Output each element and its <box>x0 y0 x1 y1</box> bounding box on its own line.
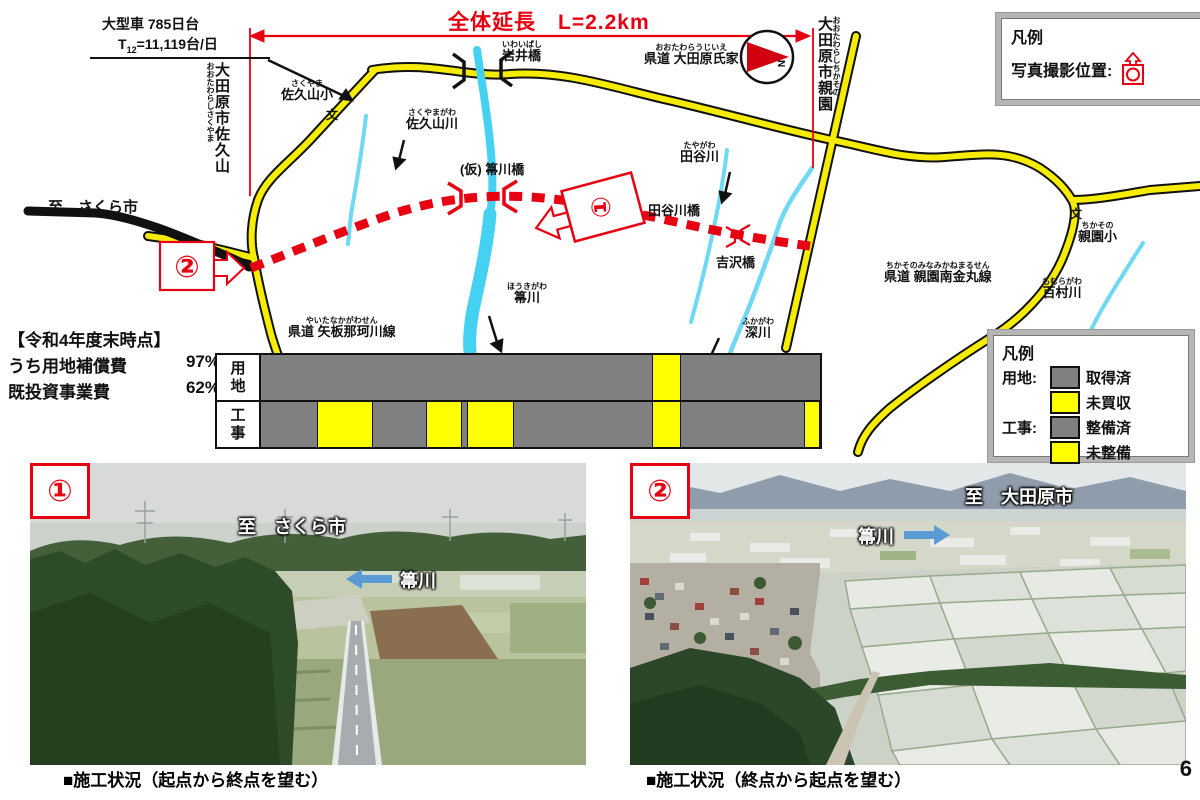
gray-swatch <box>1050 416 1080 439</box>
traffic-note-line1: 大型車 785日台 <box>90 14 270 34</box>
progress-bar-table: 用 地 工 事 <box>215 353 822 449</box>
map-label-chikasono-school: ちかその 親園小 <box>1078 222 1117 243</box>
map-title: 全体延長 L=2.2km <box>448 6 650 36</box>
map-label-route-chikasono: ちかそのみなみかねまるせん 県道 親園南金丸線 <box>884 262 992 283</box>
aerial-photo-1: ① 至 さくら市 箒川 <box>30 463 586 765</box>
map-label-route-yaita: やいたなかがわせん 県道 矢板那珂川線 <box>288 317 396 338</box>
pending-segment <box>652 355 681 400</box>
legend-item-built: 工事: 整備済 <box>1002 416 1180 439</box>
status-block: 【令和4年度末時点】 うち用地補償費97% 既投資事業費62% <box>8 326 220 403</box>
legend1-title: 凡例 <box>1011 24 1197 48</box>
photo-marker-1: ① <box>529 173 645 251</box>
national-road <box>28 211 249 267</box>
map-label-yoshizawa-bridge: 吉沢橋 <box>716 256 755 269</box>
yellow-swatch <box>1050 441 1080 464</box>
compass-n: N <box>775 60 786 67</box>
houkigawa-bridge-icon <box>448 181 517 214</box>
photo1-dest-label: 至 さくら市 <box>238 513 346 539</box>
status-row-invest: 既投資事業費62% <box>8 378 220 403</box>
map-label-route-ujiie: おおたわらうじいえ 県道 大田原氏家 <box>644 44 739 65</box>
school-symbol-icon: 文 <box>1070 208 1082 220</box>
map-label-city-chikasono: 大田原市親園 おおたわらしちかその <box>817 16 987 112</box>
land-progress-row: 用 地 <box>215 353 822 402</box>
land-row-label: 用 地 <box>215 353 261 402</box>
map-label-momura-river: もむらがわ 百村川 <box>1042 278 1082 299</box>
pending-segment <box>426 402 462 447</box>
marker-1-glyph: ① <box>585 195 616 219</box>
legend-photo-position: 凡例 写真撮影位置: <box>996 13 1200 105</box>
photo2-river-label: 箒川 <box>858 523 894 549</box>
legend2-title: 凡例 <box>1002 340 1180 364</box>
map-label-fuka-river: ふかがわ 深川 <box>742 318 774 339</box>
pending-segment <box>467 402 514 447</box>
arrow-left-icon <box>346 569 392 589</box>
photo2-caption: ■施工状況（終点から起点を望む） <box>646 766 911 791</box>
flow-arrow-icons <box>394 140 730 372</box>
construction-progress-row: 工 事 <box>215 400 822 449</box>
legend-progress: 凡例 用地: 取得済 未買収 工事: 整備済 未整備 <box>988 330 1194 462</box>
legend-item-acquired: 用地: 取得済 <box>1002 366 1180 389</box>
camera-position-icon <box>1120 52 1146 86</box>
status-heading: 【令和4年度末時点】 <box>8 326 220 351</box>
map-label-to-sakura: 至 さくら市 <box>48 200 138 215</box>
traffic-note-line2: T12=11,119台/日 <box>90 34 270 55</box>
status-row-land: うち用地補償費97% <box>8 352 220 377</box>
gray-swatch <box>1050 366 1080 389</box>
map-label-taya-river: たやがわ 田谷川 <box>680 142 719 163</box>
pending-segment <box>652 402 681 447</box>
aerial-photo-2: ② 至 大田原市 箒川 <box>630 463 1186 765</box>
map-label-city-sakuyama: おおたわらしさくやま 大田原市佐久山 <box>206 62 391 174</box>
arrow-right-icon <box>904 525 950 545</box>
photo2-scene <box>630 463 1186 765</box>
map-label-sakuyama-river: さくやまがわ 佐久山川 <box>406 109 458 130</box>
photo1-marker: ① <box>30 463 90 519</box>
land-progress-track <box>261 353 822 402</box>
pending-segment <box>317 402 373 447</box>
photo2-dest-label: 至 大田原市 <box>965 483 1073 509</box>
traffic-note: 大型車 785日台 T12=11,119台/日 <box>90 14 270 59</box>
yellow-swatch <box>1050 391 1080 414</box>
construction-progress-track <box>261 400 822 449</box>
photo1-scene <box>30 463 586 765</box>
map-label-houki-river: ほうきがわ 箒川 <box>507 283 547 304</box>
photo1-river-label: 箒川 <box>400 567 436 593</box>
photo1-caption: ■施工状況（起点から終点を望む） <box>63 766 328 791</box>
map-label-iwai-bridge: いわいばし 岩井橋 <box>502 41 542 62</box>
map-label-houki-bridge-planned: (仮) 箒川橋 <box>460 163 524 176</box>
construction-row-label: 工 事 <box>215 400 261 449</box>
map-label-taya-bridge: 田谷川橋 <box>648 204 700 217</box>
legend-item-unbuilt: 未整備 <box>1002 441 1180 464</box>
compass-icon: N <box>741 31 793 83</box>
legend-item-unacquired: 未買収 <box>1002 391 1180 414</box>
legend1-label: 写真撮影位置: <box>1011 57 1112 81</box>
photo2-marker: ② <box>630 463 690 519</box>
page-number: 6 <box>1180 756 1192 782</box>
marker-2-glyph: ② <box>174 251 199 284</box>
pending-segment <box>804 402 820 447</box>
